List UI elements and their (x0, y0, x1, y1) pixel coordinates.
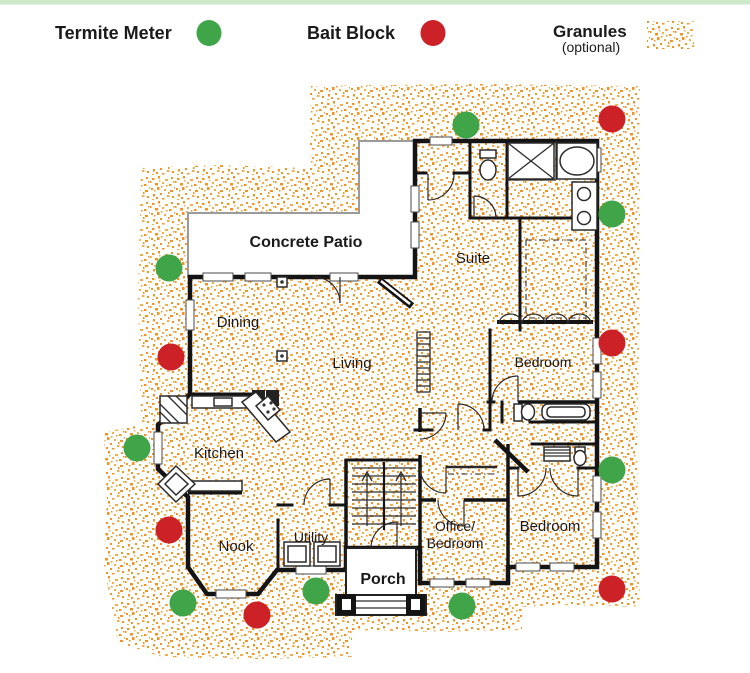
shower (508, 143, 554, 179)
bait-block-dot (599, 106, 626, 133)
room-label-porch: Porch (360, 571, 405, 588)
room-label-suite: Suite (456, 250, 490, 267)
top-accent-bar (0, 0, 750, 5)
bait-block-dot (599, 330, 626, 357)
double-vanity (572, 182, 597, 230)
legend-bait-block-label: Bait Block (307, 23, 396, 43)
room-label-kitchen: Kitchen (194, 445, 244, 462)
room-label-bedroom-lower: Bedroom (520, 518, 581, 535)
room-label-office-bedroom: Bedroom (427, 535, 484, 551)
room-label-dining: Dining (217, 314, 260, 331)
termite-meter-dot (449, 593, 476, 620)
room-label-utility: Utility (294, 529, 328, 545)
room-label-nook: Nook (218, 538, 254, 555)
room-label-bedroom-upper: Bedroom (515, 354, 572, 370)
termite-meter-dot (599, 201, 626, 228)
termite-meter-dot (599, 457, 626, 484)
floor-plan-svg: Termite Meter Bait Block Granules (optio… (0, 0, 750, 673)
room-label-concrete-patio: Concrete Patio (250, 234, 363, 251)
bait-block-legend-dot (421, 20, 446, 46)
termite-meter-dot (303, 578, 330, 605)
bait-block-dot (244, 602, 271, 629)
bait-block-dot (158, 344, 185, 371)
hall-bath-fixtures (514, 404, 590, 421)
toilet (480, 150, 496, 180)
granules-swatch (647, 21, 694, 49)
termite-meter-dot (156, 255, 183, 282)
legend-termite-meter-label: Termite Meter (55, 23, 172, 43)
termite-meter-dot (124, 435, 151, 462)
bait-block-dot (599, 576, 626, 603)
termite-meter-dot (170, 590, 197, 617)
termite-meter-dot (453, 112, 480, 139)
room-label-living: Living (332, 355, 371, 372)
room-label-office-bedroom: Office/ (435, 518, 475, 534)
floor-plan-page: Termite Meter Bait Block Granules (optio… (0, 0, 750, 673)
legend-granules-sublabel: (optional) (562, 39, 620, 55)
termite-meter-legend-dot (197, 20, 222, 46)
bathtub (557, 143, 597, 179)
legend: Termite Meter Bait Block Granules (optio… (55, 20, 694, 55)
bait-block-dot (156, 517, 183, 544)
kitchen-corner-pantry (160, 396, 187, 423)
